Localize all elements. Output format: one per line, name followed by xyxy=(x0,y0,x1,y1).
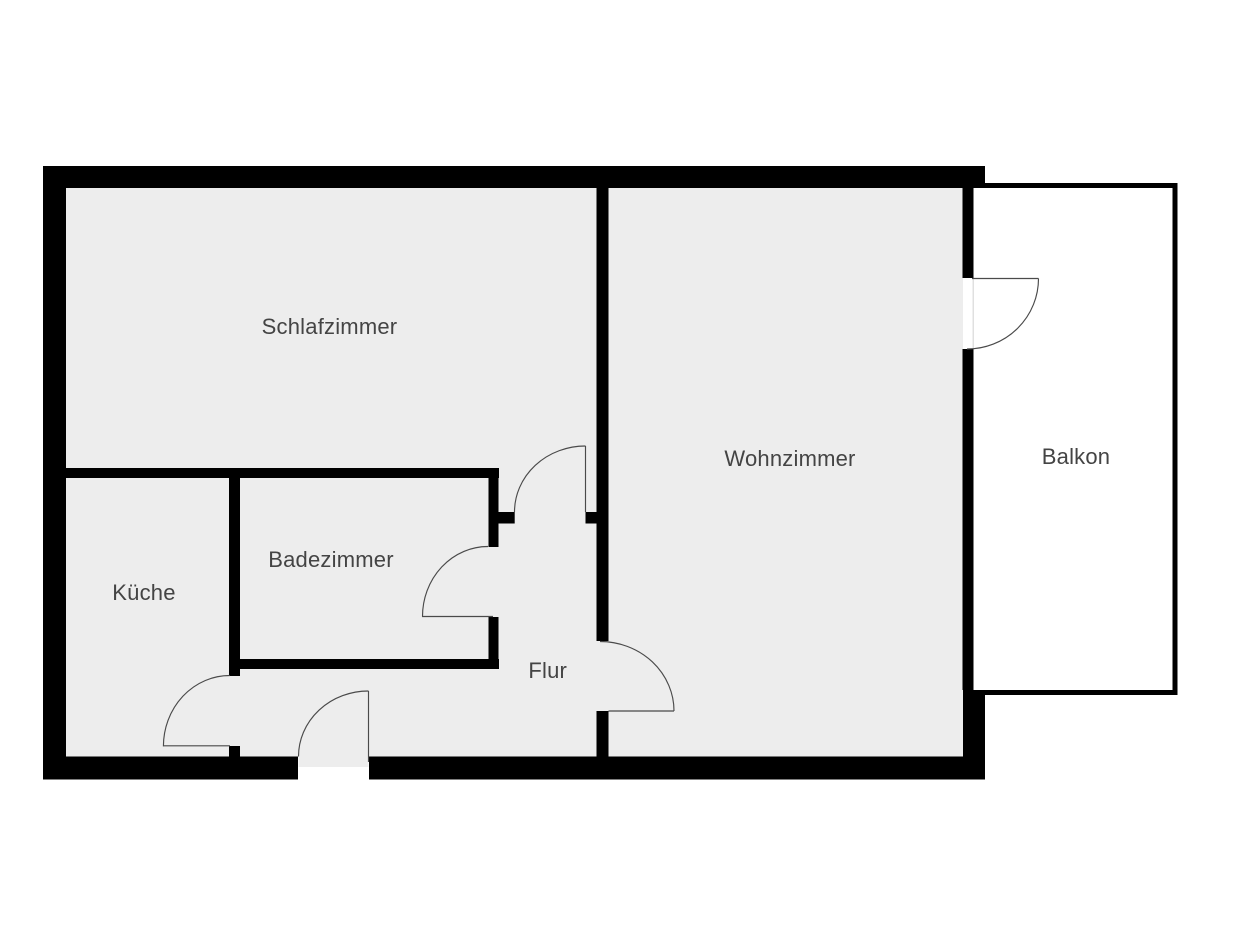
svg-text:Wohnzimmer: Wohnzimmer xyxy=(724,446,855,471)
svg-text:Schlafzimmer: Schlafzimmer xyxy=(262,314,398,339)
svg-text:Flur: Flur xyxy=(528,658,567,683)
svg-text:Badezimmer: Badezimmer xyxy=(268,547,393,572)
svg-text:Küche: Küche xyxy=(112,580,175,605)
svg-text:Balkon: Balkon xyxy=(1042,444,1110,469)
